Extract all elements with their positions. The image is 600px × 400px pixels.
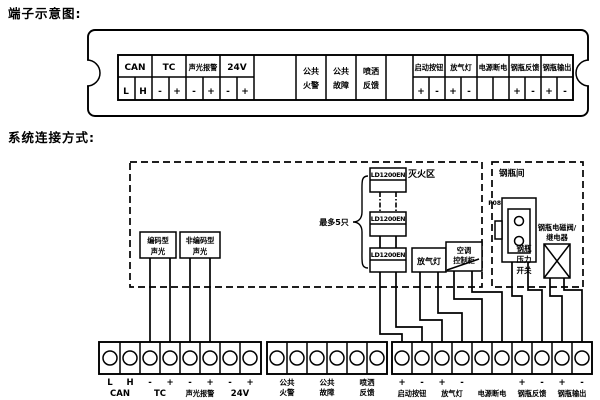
- mgroup-0-line2: 火警: [280, 387, 295, 397]
- module-2-label: LD1200EN: [371, 215, 405, 223]
- gas-lamp-device: 放气灯: [412, 248, 446, 272]
- strip-power-off-label: 电源断电: [479, 63, 509, 72]
- pressure-switch-line1: 钢瓶: [517, 243, 532, 253]
- strip-cell-start-minus: -: [435, 87, 439, 97]
- terminal-diagram-heading: 端子示意图:: [8, 6, 82, 21]
- rgroup-gas-lamp: 放气灯: [440, 389, 463, 398]
- cylinder-room-label: 钢瓶间: [499, 168, 525, 179]
- strip-can-label: CAN: [124, 63, 145, 73]
- lpin-6: -: [228, 378, 232, 388]
- ac-cabinet-line1: 空调: [457, 246, 471, 255]
- strip-tc-label: TC: [163, 63, 176, 73]
- noncoded-sounder-line2: 声光: [192, 247, 208, 256]
- lpin-5: +: [206, 378, 213, 388]
- strip-cell-cylout-plus: +: [545, 87, 553, 97]
- strip-start-button-label: 启动按钮: [415, 63, 445, 72]
- pressure-switch-tag: P08: [488, 200, 501, 207]
- mgroup-1-line1: 公共: [320, 377, 335, 387]
- lgroup-24v: 24V: [231, 389, 250, 399]
- ac-cabinet-device: 空调 控制柜: [446, 242, 482, 271]
- rpin-7: -: [580, 378, 584, 388]
- lpin-2: -: [148, 378, 152, 388]
- strip-spray-feedback-line1: 喷洒: [363, 66, 379, 76]
- strip-cell-H: H: [139, 87, 147, 97]
- gas-lamp-label: 放气灯: [416, 256, 441, 266]
- strip-common-fire-line2: 火警: [303, 80, 319, 90]
- strip-cell-L: L: [123, 87, 129, 97]
- rpin-3: -: [460, 378, 464, 388]
- strip-gas-lamp-label: 放气灯: [449, 63, 472, 72]
- strip-cell-cylout-minus: -: [563, 87, 567, 97]
- mgroup-0-line1: 公共: [280, 377, 295, 387]
- rpin-5: -: [540, 378, 544, 388]
- module-1-label: LD1200EN: [371, 171, 405, 179]
- right-terminal-block: + - + - + - + - 启动按钮 放气灯 电源断电 钢瓶反馈 钢瓶输出: [392, 342, 592, 398]
- strip-cell-lamp-plus: +: [449, 87, 457, 97]
- switch-screw-top: [515, 217, 524, 226]
- rpin-6: +: [558, 378, 565, 388]
- strip-cell-lamp-minus: -: [467, 87, 471, 97]
- lpin-3: +: [166, 378, 173, 388]
- lgroup-can: CAN: [110, 389, 130, 399]
- module-stack: LD1200EN LD1200EN LD1200EN: [370, 168, 406, 272]
- strip-common-fault-line1: 公共: [333, 66, 349, 76]
- zone-label: 灭火区: [407, 169, 435, 180]
- strip-common-fault-line2: 故障: [333, 80, 349, 90]
- coded-sounder: 编码型 声光: [140, 232, 176, 258]
- strip-cell-tc-plus: +: [173, 87, 181, 97]
- lpin-0: L: [107, 378, 113, 388]
- mgroup-1-line2: 故障: [320, 387, 335, 397]
- rpin-1: -: [420, 378, 424, 388]
- module-3-label: LD1200EN: [371, 251, 405, 259]
- strip-cell-tc-minus: -: [158, 87, 162, 97]
- rgroup-start-button: 启动按钮: [398, 389, 428, 398]
- pressure-switch-line2: 压力: [517, 254, 532, 264]
- wiring-diagram: 端子示意图: 系统连接方式: CAN: [0, 0, 600, 400]
- strip-cell-sl-minus: -: [192, 87, 196, 97]
- strip-24v-label: 24V: [227, 63, 247, 73]
- coded-sounder-line2: 声光: [150, 247, 166, 256]
- strip-cell-cylfb-minus: -: [531, 87, 535, 97]
- rgroup-cyl-output: 钢瓶输出: [557, 389, 587, 398]
- lgroup-sound-light: 声光报警: [185, 389, 216, 398]
- max-units-label: 最多5只: [319, 217, 349, 227]
- strip-cell-start-plus: +: [417, 87, 425, 97]
- mgroup-2-line2: 反馈: [360, 387, 375, 397]
- solenoid-line1: 钢瓶电磁阀/: [537, 223, 577, 232]
- strip-cyl-output-label: 钢瓶输出: [542, 63, 572, 72]
- noncoded-sounder-line1: 非编码型: [186, 236, 215, 245]
- strip-cell-sl-plus: +: [207, 87, 215, 97]
- strip-spray-feedback-line2: 反馈: [363, 80, 379, 90]
- solenoid-line2: 继电器: [546, 233, 568, 242]
- pressure-switch-line3: 开关: [517, 265, 532, 275]
- strip-sound-light-label: 声光报警: [188, 63, 219, 72]
- strip-cyl-feedback-label: 钢瓶反馈: [510, 63, 541, 72]
- lpin-7: +: [246, 378, 253, 388]
- strip-common-fire-line1: 公共: [303, 66, 319, 76]
- rgroup-power-off: 电源断电: [478, 389, 508, 398]
- rpin-0: +: [398, 378, 405, 388]
- system-connection-heading: 系统连接方式:: [8, 130, 95, 145]
- rpin-4: +: [518, 378, 525, 388]
- rgroup-cyl-feedback: 钢瓶反馈: [517, 389, 548, 398]
- strip-cell-cylfb-plus: +: [513, 87, 521, 97]
- strip-cell-24v-plus: +: [241, 87, 249, 97]
- terminal-strip: CAN TC 声光报警 24V 启动按钮 放气灯 电源断电 钢瓶反馈 钢瓶输出 …: [118, 55, 573, 100]
- lpin-4: -: [188, 378, 192, 388]
- coded-sounder-line1: 编码型: [147, 236, 169, 245]
- noncoded-sounder: 非编码型 声光: [180, 232, 220, 258]
- mgroup-2-line1: 喷洒: [360, 377, 375, 387]
- wiring-diagram-page: 端子示意图: 系统连接方式: CAN: [0, 0, 600, 400]
- lgroup-tc: TC: [154, 389, 166, 399]
- lpin-1: H: [126, 378, 133, 388]
- rpin-2: +: [438, 378, 445, 388]
- middle-terminal-block: 公共 火警 公共 故障 喷洒 反馈: [267, 342, 387, 397]
- strip-cell-24v-minus: -: [226, 87, 230, 97]
